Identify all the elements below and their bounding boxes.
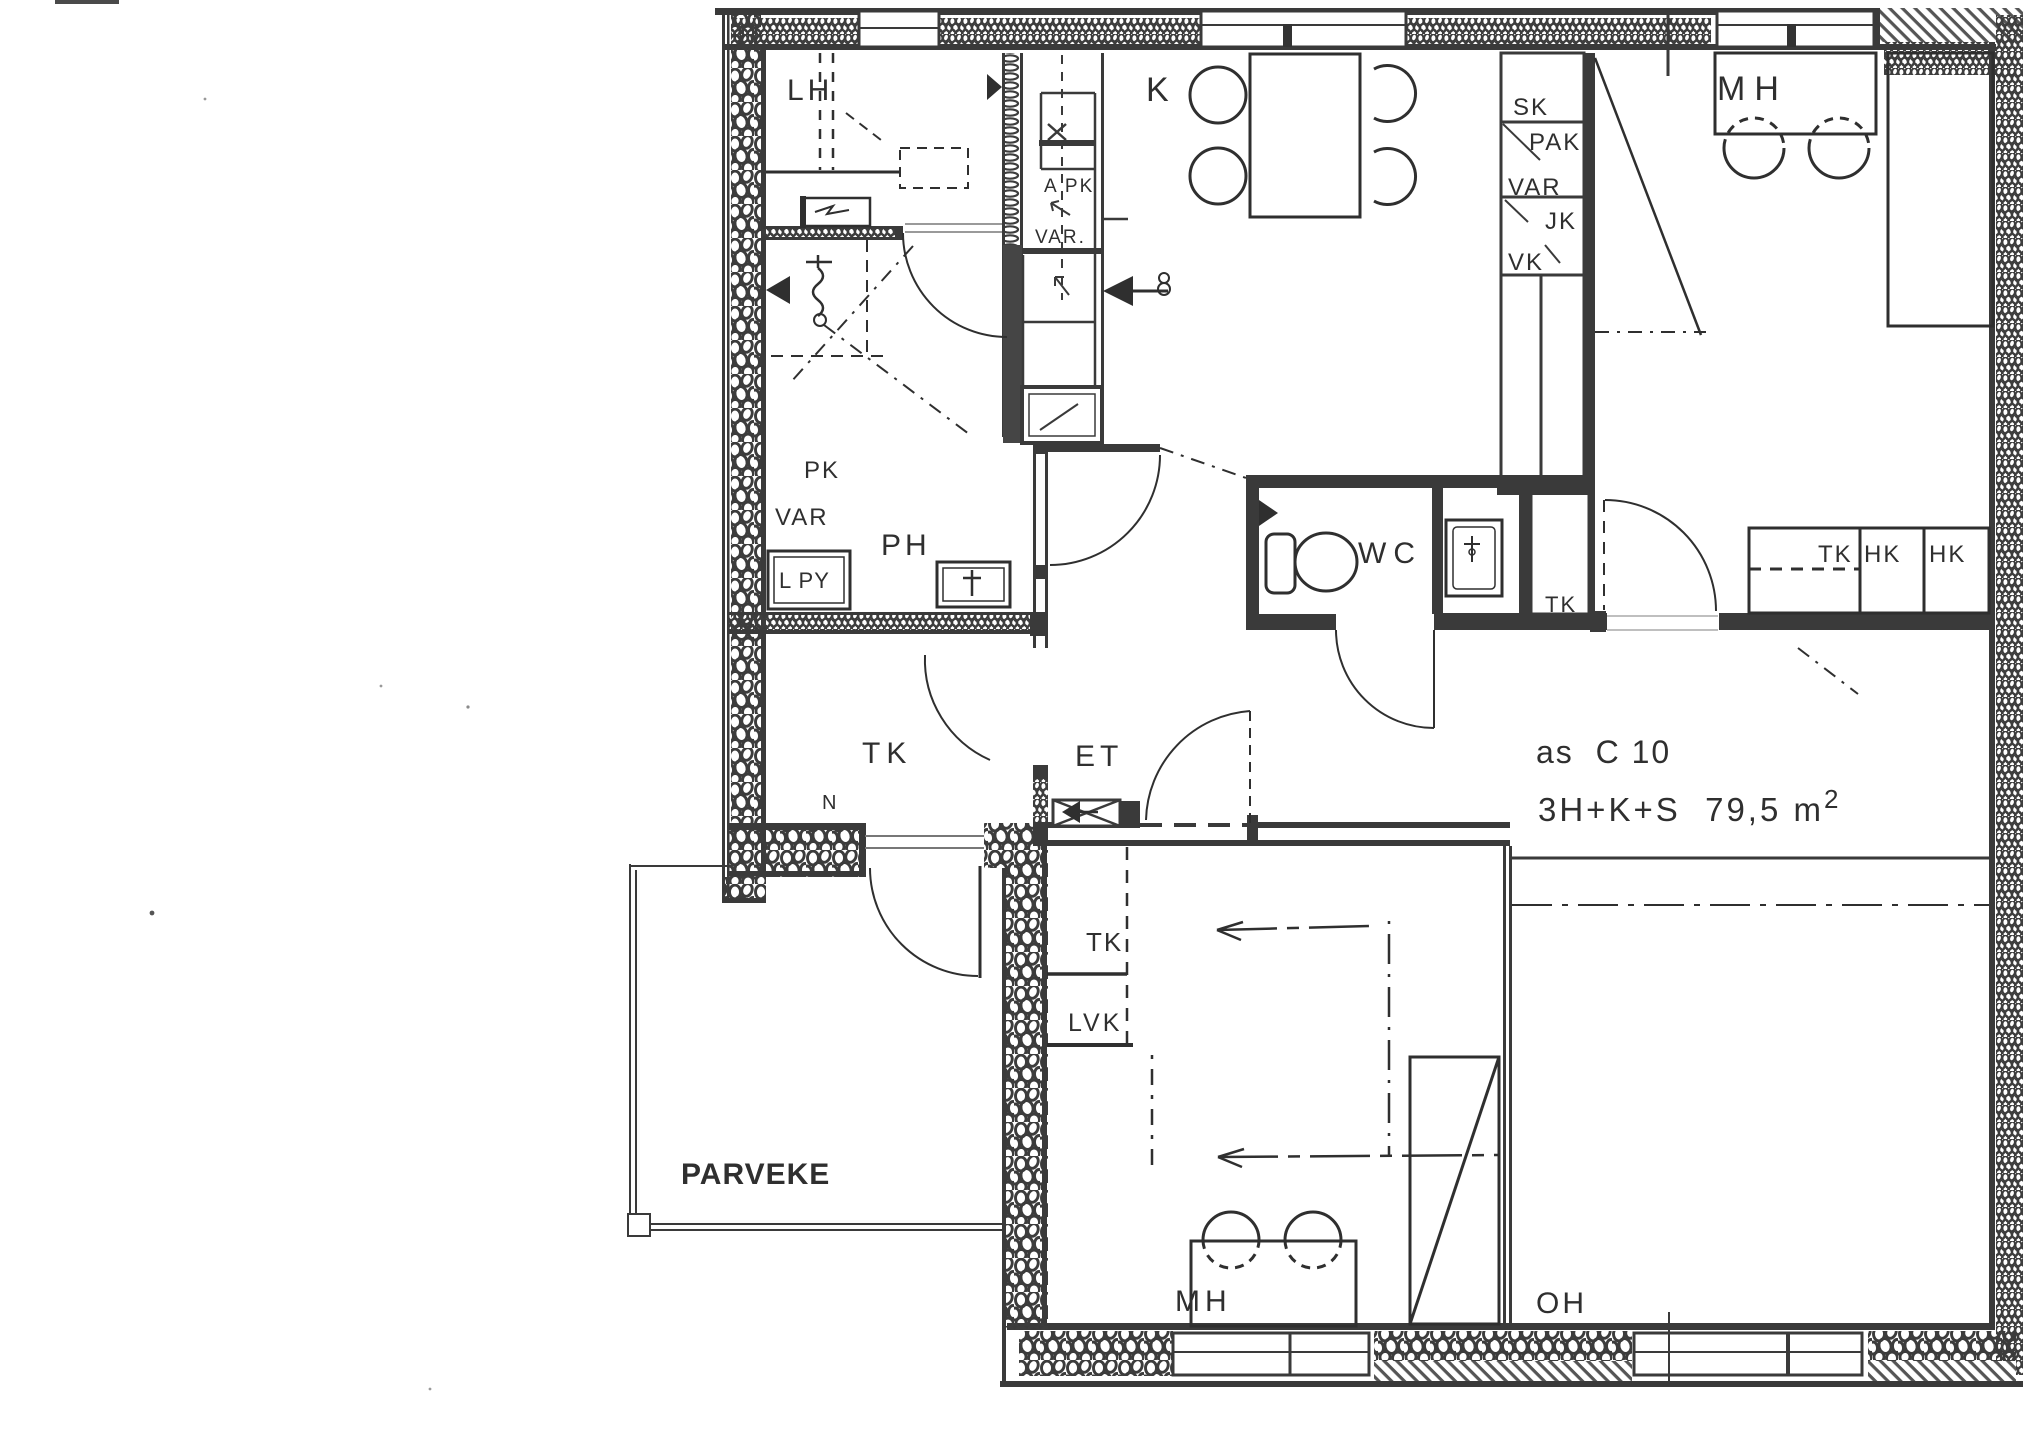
- svg-text:3H+K+S 79,5 m2: 3H+K+S 79,5 m2: [1538, 784, 1841, 828]
- svg-text:TK: TK: [1086, 927, 1123, 957]
- svg-text:A PK: A PK: [1044, 176, 1094, 197]
- svg-text:N: N: [822, 792, 838, 814]
- svg-text:K: K: [1146, 71, 1173, 109]
- svg-text:PH: PH: [881, 529, 931, 562]
- svg-text:VAR: VAR: [775, 504, 829, 531]
- svg-text:MH: MH: [1717, 70, 1788, 108]
- svg-text:ET: ET: [1075, 740, 1123, 773]
- svg-text:TK: TK: [862, 737, 912, 770]
- svg-text:PK: PK: [804, 457, 840, 484]
- svg-text:TK: TK: [1818, 541, 1853, 568]
- svg-text:OH: OH: [1536, 1287, 1587, 1320]
- svg-text:HK: HK: [1864, 541, 1901, 568]
- svg-text:LVK: LVK: [1068, 1009, 1122, 1037]
- svg-text:PARVEKE: PARVEKE: [681, 1158, 830, 1191]
- svg-text:as C 10: as C 10: [1536, 734, 1671, 770]
- svg-text:TK: TK: [1545, 592, 1577, 617]
- svg-text:JK: JK: [1545, 208, 1577, 235]
- svg-text:HK: HK: [1929, 541, 1966, 568]
- svg-text:LH: LH: [787, 74, 833, 107]
- svg-text:VK: VK: [1508, 249, 1544, 276]
- svg-text:SK: SK: [1513, 94, 1549, 121]
- svg-text:VAR.: VAR.: [1035, 227, 1086, 248]
- svg-text:VAR: VAR: [1508, 174, 1562, 201]
- svg-text:MH: MH: [1175, 1285, 1232, 1318]
- svg-text:PAK: PAK: [1529, 129, 1581, 156]
- svg-text:WC: WC: [1358, 537, 1422, 570]
- svg-text:L PY: L PY: [779, 568, 830, 593]
